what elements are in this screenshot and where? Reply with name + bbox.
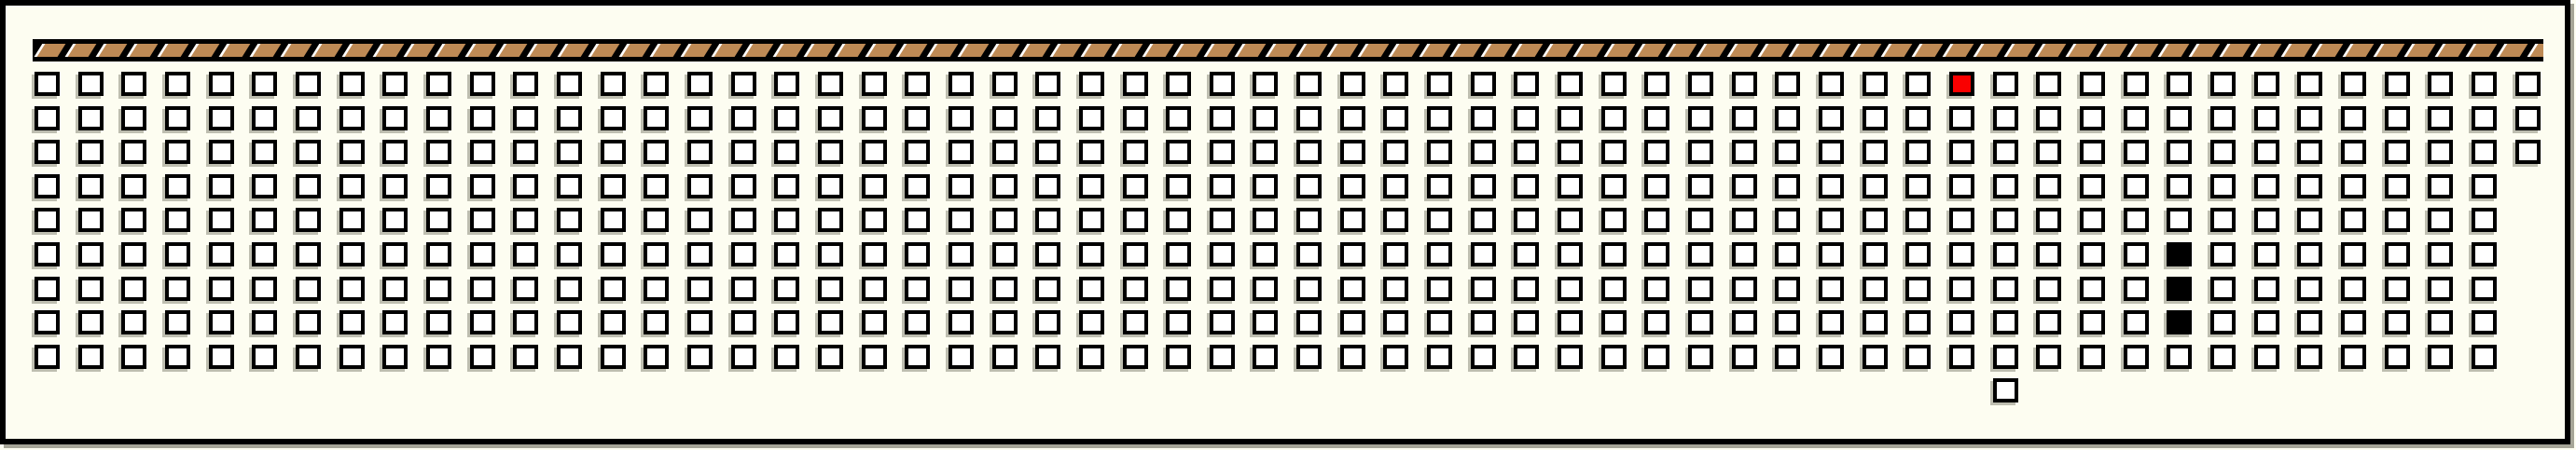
occupied-seat-cell[interactable]	[2167, 242, 2192, 266]
seat-cell[interactable]	[2210, 242, 2236, 266]
seat-cell[interactable]	[2428, 72, 2453, 96]
seat-cell[interactable]	[1383, 242, 1408, 266]
seat-cell[interactable]	[1688, 140, 1713, 164]
seat-cell[interactable]	[513, 277, 538, 301]
seat-cell[interactable]	[1863, 174, 1888, 198]
seat-cell[interactable]	[1035, 174, 1060, 198]
seat-cell[interactable]	[78, 72, 104, 96]
seat-cell[interactable]	[426, 242, 451, 266]
seat-cell[interactable]	[426, 106, 451, 130]
seat-cell[interactable]	[2124, 345, 2149, 369]
seat-cell[interactable]	[339, 140, 365, 164]
seat-cell[interactable]	[1296, 277, 1322, 301]
seat-cell[interactable]	[2254, 310, 2279, 334]
seat-cell[interactable]	[1558, 106, 1583, 130]
seat-cell[interactable]	[1340, 106, 1365, 130]
seat-cell[interactable]	[1993, 242, 2018, 266]
seat-cell[interactable]	[252, 106, 277, 130]
seat-cell[interactable]	[905, 345, 930, 369]
seat-cell[interactable]	[2341, 310, 2366, 334]
seat-cell[interactable]	[470, 106, 495, 130]
seat-cell[interactable]	[2385, 106, 2410, 130]
seat-cell[interactable]	[1558, 174, 1583, 198]
seat-cell[interactable]	[601, 174, 626, 198]
seat-cell[interactable]	[35, 242, 60, 266]
seat-cell[interactable]	[1688, 242, 1713, 266]
seat-cell[interactable]	[165, 345, 190, 369]
seat-cell[interactable]	[2428, 242, 2453, 266]
seat-cell[interactable]	[949, 208, 974, 232]
seat-cell[interactable]	[1819, 345, 1844, 369]
seat-cell[interactable]	[513, 72, 538, 96]
seat-cell[interactable]	[2036, 345, 2061, 369]
seat-cell[interactable]	[644, 208, 669, 232]
seat-cell[interactable]	[1383, 106, 1408, 130]
seat-cell[interactable]	[949, 277, 974, 301]
seat-cell[interactable]	[2036, 310, 2061, 334]
seat-cell[interactable]	[1644, 208, 1669, 232]
seat-cell[interactable]	[1863, 242, 1888, 266]
seat-cell[interactable]	[2341, 140, 2366, 164]
seat-cell[interactable]	[165, 277, 190, 301]
seat-cell[interactable]	[1732, 208, 1757, 232]
seat-cell[interactable]	[2472, 106, 2497, 130]
seat-cell[interactable]	[1819, 174, 1844, 198]
seat-cell[interactable]	[731, 310, 756, 334]
seat-cell[interactable]	[513, 208, 538, 232]
seat-cell[interactable]	[1514, 72, 1539, 96]
seat-cell[interactable]	[2428, 208, 2453, 232]
seat-cell[interactable]	[1601, 140, 1627, 164]
seat-cell[interactable]	[1123, 310, 1148, 334]
seat-cell[interactable]	[949, 174, 974, 198]
seat-cell[interactable]	[1166, 277, 1191, 301]
seat-cell[interactable]	[252, 345, 277, 369]
seat-cell[interactable]	[78, 277, 104, 301]
seat-cell[interactable]	[818, 310, 843, 334]
seat-cell[interactable]	[2385, 310, 2410, 334]
seat-cell[interactable]	[905, 242, 930, 266]
seat-cell[interactable]	[1166, 242, 1191, 266]
seat-cell[interactable]	[35, 208, 60, 232]
seat-cell[interactable]	[209, 242, 234, 266]
seat-cell[interactable]	[992, 208, 1018, 232]
seat-cell[interactable]	[1732, 140, 1757, 164]
seat-cell[interactable]	[1688, 208, 1713, 232]
seat-cell[interactable]	[2472, 72, 2497, 96]
seat-cell[interactable]	[2297, 140, 2322, 164]
seat-cell[interactable]	[2297, 310, 2322, 334]
seat-cell[interactable]	[1166, 345, 1191, 369]
seat-cell[interactable]	[557, 72, 582, 96]
seat-cell[interactable]	[1732, 72, 1757, 96]
seat-cell[interactable]	[209, 174, 234, 198]
seat-cell[interactable]	[1863, 310, 1888, 334]
seat-cell[interactable]	[1123, 208, 1148, 232]
seat-cell[interactable]	[1644, 140, 1669, 164]
seat-cell[interactable]	[687, 208, 713, 232]
seat-cell[interactable]	[601, 242, 626, 266]
seat-cell[interactable]	[774, 242, 799, 266]
seat-cell[interactable]	[1166, 174, 1191, 198]
seat-cell[interactable]	[470, 72, 495, 96]
seat-cell[interactable]	[426, 277, 451, 301]
seat-cell[interactable]	[35, 140, 60, 164]
seat-cell[interactable]	[2428, 140, 2453, 164]
seat-cell[interactable]	[1949, 106, 1974, 130]
seat-cell[interactable]	[1775, 72, 1800, 96]
seat-cell[interactable]	[2124, 277, 2149, 301]
seat-cell[interactable]	[949, 140, 974, 164]
seat-cell[interactable]	[426, 208, 451, 232]
seat-cell[interactable]	[1210, 72, 1235, 96]
seat-cell[interactable]	[1123, 106, 1148, 130]
seat-cell[interactable]	[470, 208, 495, 232]
seat-cell[interactable]	[1079, 174, 1104, 198]
seat-cell[interactable]	[2385, 277, 2410, 301]
seat-cell[interactable]	[601, 345, 626, 369]
seat-cell[interactable]	[557, 242, 582, 266]
seat-cell[interactable]	[1949, 208, 1974, 232]
seat-cell[interactable]	[1210, 310, 1235, 334]
seat-cell[interactable]	[2124, 174, 2149, 198]
seat-cell[interactable]	[774, 106, 799, 130]
seat-cell[interactable]	[644, 310, 669, 334]
seat-cell[interactable]	[339, 277, 365, 301]
seat-cell[interactable]	[1644, 277, 1669, 301]
seat-cell[interactable]	[1819, 106, 1844, 130]
seat-cell[interactable]	[1732, 106, 1757, 130]
seat-cell[interactable]	[2124, 106, 2149, 130]
seat-cell[interactable]	[1688, 277, 1713, 301]
seat-cell[interactable]	[1166, 106, 1191, 130]
seat-cell[interactable]	[731, 277, 756, 301]
seat-cell[interactable]	[382, 242, 408, 266]
seat-cell[interactable]	[296, 72, 321, 96]
seat-cell[interactable]	[1079, 208, 1104, 232]
seat-cell[interactable]	[862, 345, 887, 369]
seat-cell[interactable]	[905, 208, 930, 232]
seat-cell[interactable]	[1079, 140, 1104, 164]
seat-cell[interactable]	[1471, 140, 1496, 164]
seat-cell[interactable]	[1253, 345, 1278, 369]
seat-cell[interactable]	[1775, 277, 1800, 301]
seat-cell[interactable]	[252, 72, 277, 96]
seat-cell[interactable]	[2036, 140, 2061, 164]
seat-cell[interactable]	[35, 174, 60, 198]
seat-cell[interactable]	[35, 277, 60, 301]
seat-cell[interactable]	[1340, 345, 1365, 369]
seat-cell[interactable]	[1905, 106, 1931, 130]
seat-cell[interactable]	[731, 106, 756, 130]
seat-cell[interactable]	[862, 140, 887, 164]
seat-cell[interactable]	[1514, 345, 1539, 369]
seat-cell[interactable]	[1601, 310, 1627, 334]
seat-cell[interactable]	[2515, 140, 2541, 164]
seat-cell[interactable]	[2341, 277, 2366, 301]
seat-cell[interactable]	[2385, 208, 2410, 232]
seat-cell[interactable]	[557, 208, 582, 232]
seat-cell[interactable]	[1296, 208, 1322, 232]
seat-cell[interactable]	[731, 140, 756, 164]
seat-cell[interactable]	[2124, 310, 2149, 334]
seat-cell[interactable]	[209, 208, 234, 232]
seat-cell[interactable]	[209, 72, 234, 96]
seat-cell[interactable]	[2472, 140, 2497, 164]
seat-cell[interactable]	[2254, 72, 2279, 96]
seat-cell[interactable]	[1775, 140, 1800, 164]
seat-cell[interactable]	[296, 174, 321, 198]
seat-cell[interactable]	[1993, 106, 2018, 130]
seat-cell[interactable]	[1035, 345, 1060, 369]
seat-cell[interactable]	[1601, 345, 1627, 369]
seat-cell[interactable]	[1123, 345, 1148, 369]
seat-cell[interactable]	[1079, 277, 1104, 301]
seat-cell[interactable]	[2124, 242, 2149, 266]
seat-cell[interactable]	[2472, 242, 2497, 266]
seat-cell[interactable]	[2297, 345, 2322, 369]
seat-cell[interactable]	[2124, 208, 2149, 232]
seat-cell[interactable]	[296, 345, 321, 369]
seat-cell[interactable]	[1558, 242, 1583, 266]
seat-cell[interactable]	[1732, 310, 1757, 334]
seat-cell[interactable]	[1775, 242, 1800, 266]
seat-cell[interactable]	[1340, 72, 1365, 96]
seat-cell[interactable]	[1601, 242, 1627, 266]
seat-cell[interactable]	[2036, 208, 2061, 232]
seat-cell[interactable]	[2515, 106, 2541, 130]
seat-cell[interactable]	[121, 345, 146, 369]
seat-cell[interactable]	[2080, 208, 2105, 232]
seat-cell[interactable]	[2385, 242, 2410, 266]
seat-cell[interactable]	[470, 345, 495, 369]
seat-cell[interactable]	[862, 277, 887, 301]
seat-cell[interactable]	[252, 310, 277, 334]
seat-cell[interactable]	[1688, 72, 1713, 96]
seat-cell[interactable]	[905, 72, 930, 96]
seat-cell[interactable]	[1253, 140, 1278, 164]
seat-cell[interactable]	[2167, 345, 2192, 369]
seat-cell[interactable]	[1123, 174, 1148, 198]
seat-cell[interactable]	[339, 208, 365, 232]
seat-cell[interactable]	[1558, 140, 1583, 164]
seat-cell[interactable]	[2472, 345, 2497, 369]
seat-cell[interactable]	[1601, 106, 1627, 130]
seat-cell[interactable]	[2124, 140, 2149, 164]
seat-cell[interactable]	[2080, 106, 2105, 130]
seat-cell[interactable]	[1644, 106, 1669, 130]
seat-cell[interactable]	[78, 242, 104, 266]
seat-cell[interactable]	[601, 208, 626, 232]
seat-cell[interactable]	[1296, 310, 1322, 334]
seat-cell[interactable]	[1949, 310, 1974, 334]
seat-cell[interactable]	[2167, 72, 2192, 96]
seat-cell[interactable]	[296, 140, 321, 164]
seat-cell[interactable]	[1427, 242, 1452, 266]
seat-cell[interactable]	[1558, 208, 1583, 232]
seat-cell[interactable]	[209, 277, 234, 301]
seat-cell[interactable]	[687, 140, 713, 164]
seat-cell[interactable]	[1514, 277, 1539, 301]
seat-cell[interactable]	[818, 242, 843, 266]
seat-cell[interactable]	[1514, 140, 1539, 164]
seat-cell[interactable]	[1732, 277, 1757, 301]
seat-cell[interactable]	[2341, 242, 2366, 266]
seat-cell[interactable]	[1775, 174, 1800, 198]
seat-cell[interactable]	[1340, 310, 1365, 334]
seat-cell[interactable]	[470, 242, 495, 266]
seat-cell[interactable]	[774, 72, 799, 96]
seat-cell[interactable]	[557, 310, 582, 334]
seat-cell[interactable]	[1863, 277, 1888, 301]
seat-cell[interactable]	[1863, 208, 1888, 232]
seat-cell[interactable]	[1296, 106, 1322, 130]
seat-cell[interactable]	[2297, 174, 2322, 198]
seat-cell[interactable]	[1644, 242, 1669, 266]
seat-cell[interactable]	[774, 310, 799, 334]
seat-cell[interactable]	[209, 106, 234, 130]
seat-cell[interactable]	[992, 345, 1018, 369]
seat-cell[interactable]	[1471, 277, 1496, 301]
seat-cell[interactable]	[644, 277, 669, 301]
seat-cell[interactable]	[426, 310, 451, 334]
seat-cell[interactable]	[252, 277, 277, 301]
seat-cell[interactable]	[1296, 140, 1322, 164]
seat-cell[interactable]	[35, 72, 60, 96]
seat-cell[interactable]	[1035, 140, 1060, 164]
seat-cell[interactable]	[78, 140, 104, 164]
seat-cell[interactable]	[1905, 208, 1931, 232]
seat-cell[interactable]	[1775, 106, 1800, 130]
seat-cell[interactable]	[1253, 310, 1278, 334]
seat-cell[interactable]	[2385, 72, 2410, 96]
seat-cell[interactable]	[992, 310, 1018, 334]
seat-cell[interactable]	[1471, 174, 1496, 198]
seat-cell[interactable]	[557, 345, 582, 369]
seat-cell[interactable]	[818, 277, 843, 301]
seat-cell[interactable]	[1035, 106, 1060, 130]
seat-cell[interactable]	[1210, 140, 1235, 164]
seat-cell[interactable]	[296, 106, 321, 130]
seat-cell[interactable]	[1210, 174, 1235, 198]
seat-cell[interactable]	[2297, 72, 2322, 96]
seat-cell[interactable]	[949, 106, 974, 130]
seat-cell[interactable]	[2385, 174, 2410, 198]
seat-cell[interactable]	[1383, 345, 1408, 369]
seat-cell[interactable]	[513, 174, 538, 198]
seat-cell[interactable]	[1210, 106, 1235, 130]
seat-cell[interactable]	[1644, 310, 1669, 334]
seat-cell[interactable]	[339, 72, 365, 96]
seat-cell[interactable]	[121, 140, 146, 164]
seat-cell[interactable]	[818, 140, 843, 164]
seat-cell[interactable]	[2341, 208, 2366, 232]
seat-cell[interactable]	[774, 277, 799, 301]
seat-cell[interactable]	[687, 106, 713, 130]
seat-cell[interactable]	[1427, 208, 1452, 232]
seat-cell[interactable]	[1905, 72, 1931, 96]
seat-cell[interactable]	[2297, 208, 2322, 232]
seat-cell[interactable]	[2210, 208, 2236, 232]
seat-cell[interactable]	[2036, 242, 2061, 266]
seat-cell[interactable]	[78, 174, 104, 198]
seat-cell[interactable]	[165, 208, 190, 232]
seat-cell[interactable]	[1340, 208, 1365, 232]
seat-cell[interactable]	[992, 174, 1018, 198]
seat-cell[interactable]	[731, 208, 756, 232]
seat-cell[interactable]	[121, 277, 146, 301]
seat-cell[interactable]	[2254, 174, 2279, 198]
seat-cell[interactable]	[1949, 277, 1974, 301]
seat-cell[interactable]	[2428, 345, 2453, 369]
seat-cell[interactable]	[774, 140, 799, 164]
seat-cell[interactable]	[2254, 242, 2279, 266]
seat-cell[interactable]	[1993, 174, 2018, 198]
seat-cell[interactable]	[2210, 310, 2236, 334]
seat-cell[interactable]	[1210, 345, 1235, 369]
seat-cell[interactable]	[1905, 277, 1931, 301]
seat-cell[interactable]	[1863, 106, 1888, 130]
seat-cell[interactable]	[1123, 277, 1148, 301]
seat-cell[interactable]	[1993, 345, 2018, 369]
seat-cell[interactable]	[296, 277, 321, 301]
seat-cell[interactable]	[2167, 208, 2192, 232]
seat-cell[interactable]	[121, 174, 146, 198]
seat-cell[interactable]	[862, 208, 887, 232]
seat-cell[interactable]	[1340, 242, 1365, 266]
seat-cell[interactable]	[2080, 277, 2105, 301]
seat-cell[interactable]	[731, 345, 756, 369]
seat-cell[interactable]	[2210, 140, 2236, 164]
seat-cell[interactable]	[1905, 310, 1931, 334]
seat-cell[interactable]	[1471, 310, 1496, 334]
seat-cell[interactable]	[78, 208, 104, 232]
seat-cell[interactable]	[1819, 140, 1844, 164]
seat-cell[interactable]	[165, 174, 190, 198]
seat-cell[interactable]	[1993, 140, 2018, 164]
seat-cell[interactable]	[2428, 277, 2453, 301]
seat-cell[interactable]	[339, 310, 365, 334]
seat-cell[interactable]	[1514, 208, 1539, 232]
seat-cell[interactable]	[1383, 277, 1408, 301]
seat-cell[interactable]	[1819, 242, 1844, 266]
seat-cell[interactable]	[513, 310, 538, 334]
seat-cell[interactable]	[949, 310, 974, 334]
seat-cell[interactable]	[1253, 242, 1278, 266]
seat-cell[interactable]	[2385, 140, 2410, 164]
seat-cell[interactable]	[2385, 345, 2410, 369]
seat-cell[interactable]	[1905, 174, 1931, 198]
seat-cell[interactable]	[1296, 72, 1322, 96]
seat-cell[interactable]	[470, 174, 495, 198]
seat-cell[interactable]	[1775, 310, 1800, 334]
seat-cell[interactable]	[1427, 106, 1452, 130]
seat-cell[interactable]	[2428, 310, 2453, 334]
seat-cell[interactable]	[905, 277, 930, 301]
seat-cell[interactable]	[644, 242, 669, 266]
seat-cell[interactable]	[774, 174, 799, 198]
seat-cell[interactable]	[339, 174, 365, 198]
seat-cell[interactable]	[78, 345, 104, 369]
seat-cell[interactable]	[2210, 277, 2236, 301]
seat-cell[interactable]	[949, 242, 974, 266]
seat-cell[interactable]	[2297, 242, 2322, 266]
seat-cell[interactable]	[2428, 174, 2453, 198]
seat-cell[interactable]	[905, 310, 930, 334]
seat-cell[interactable]	[2080, 310, 2105, 334]
seat-cell[interactable]	[1427, 345, 1452, 369]
seat-cell[interactable]	[165, 310, 190, 334]
